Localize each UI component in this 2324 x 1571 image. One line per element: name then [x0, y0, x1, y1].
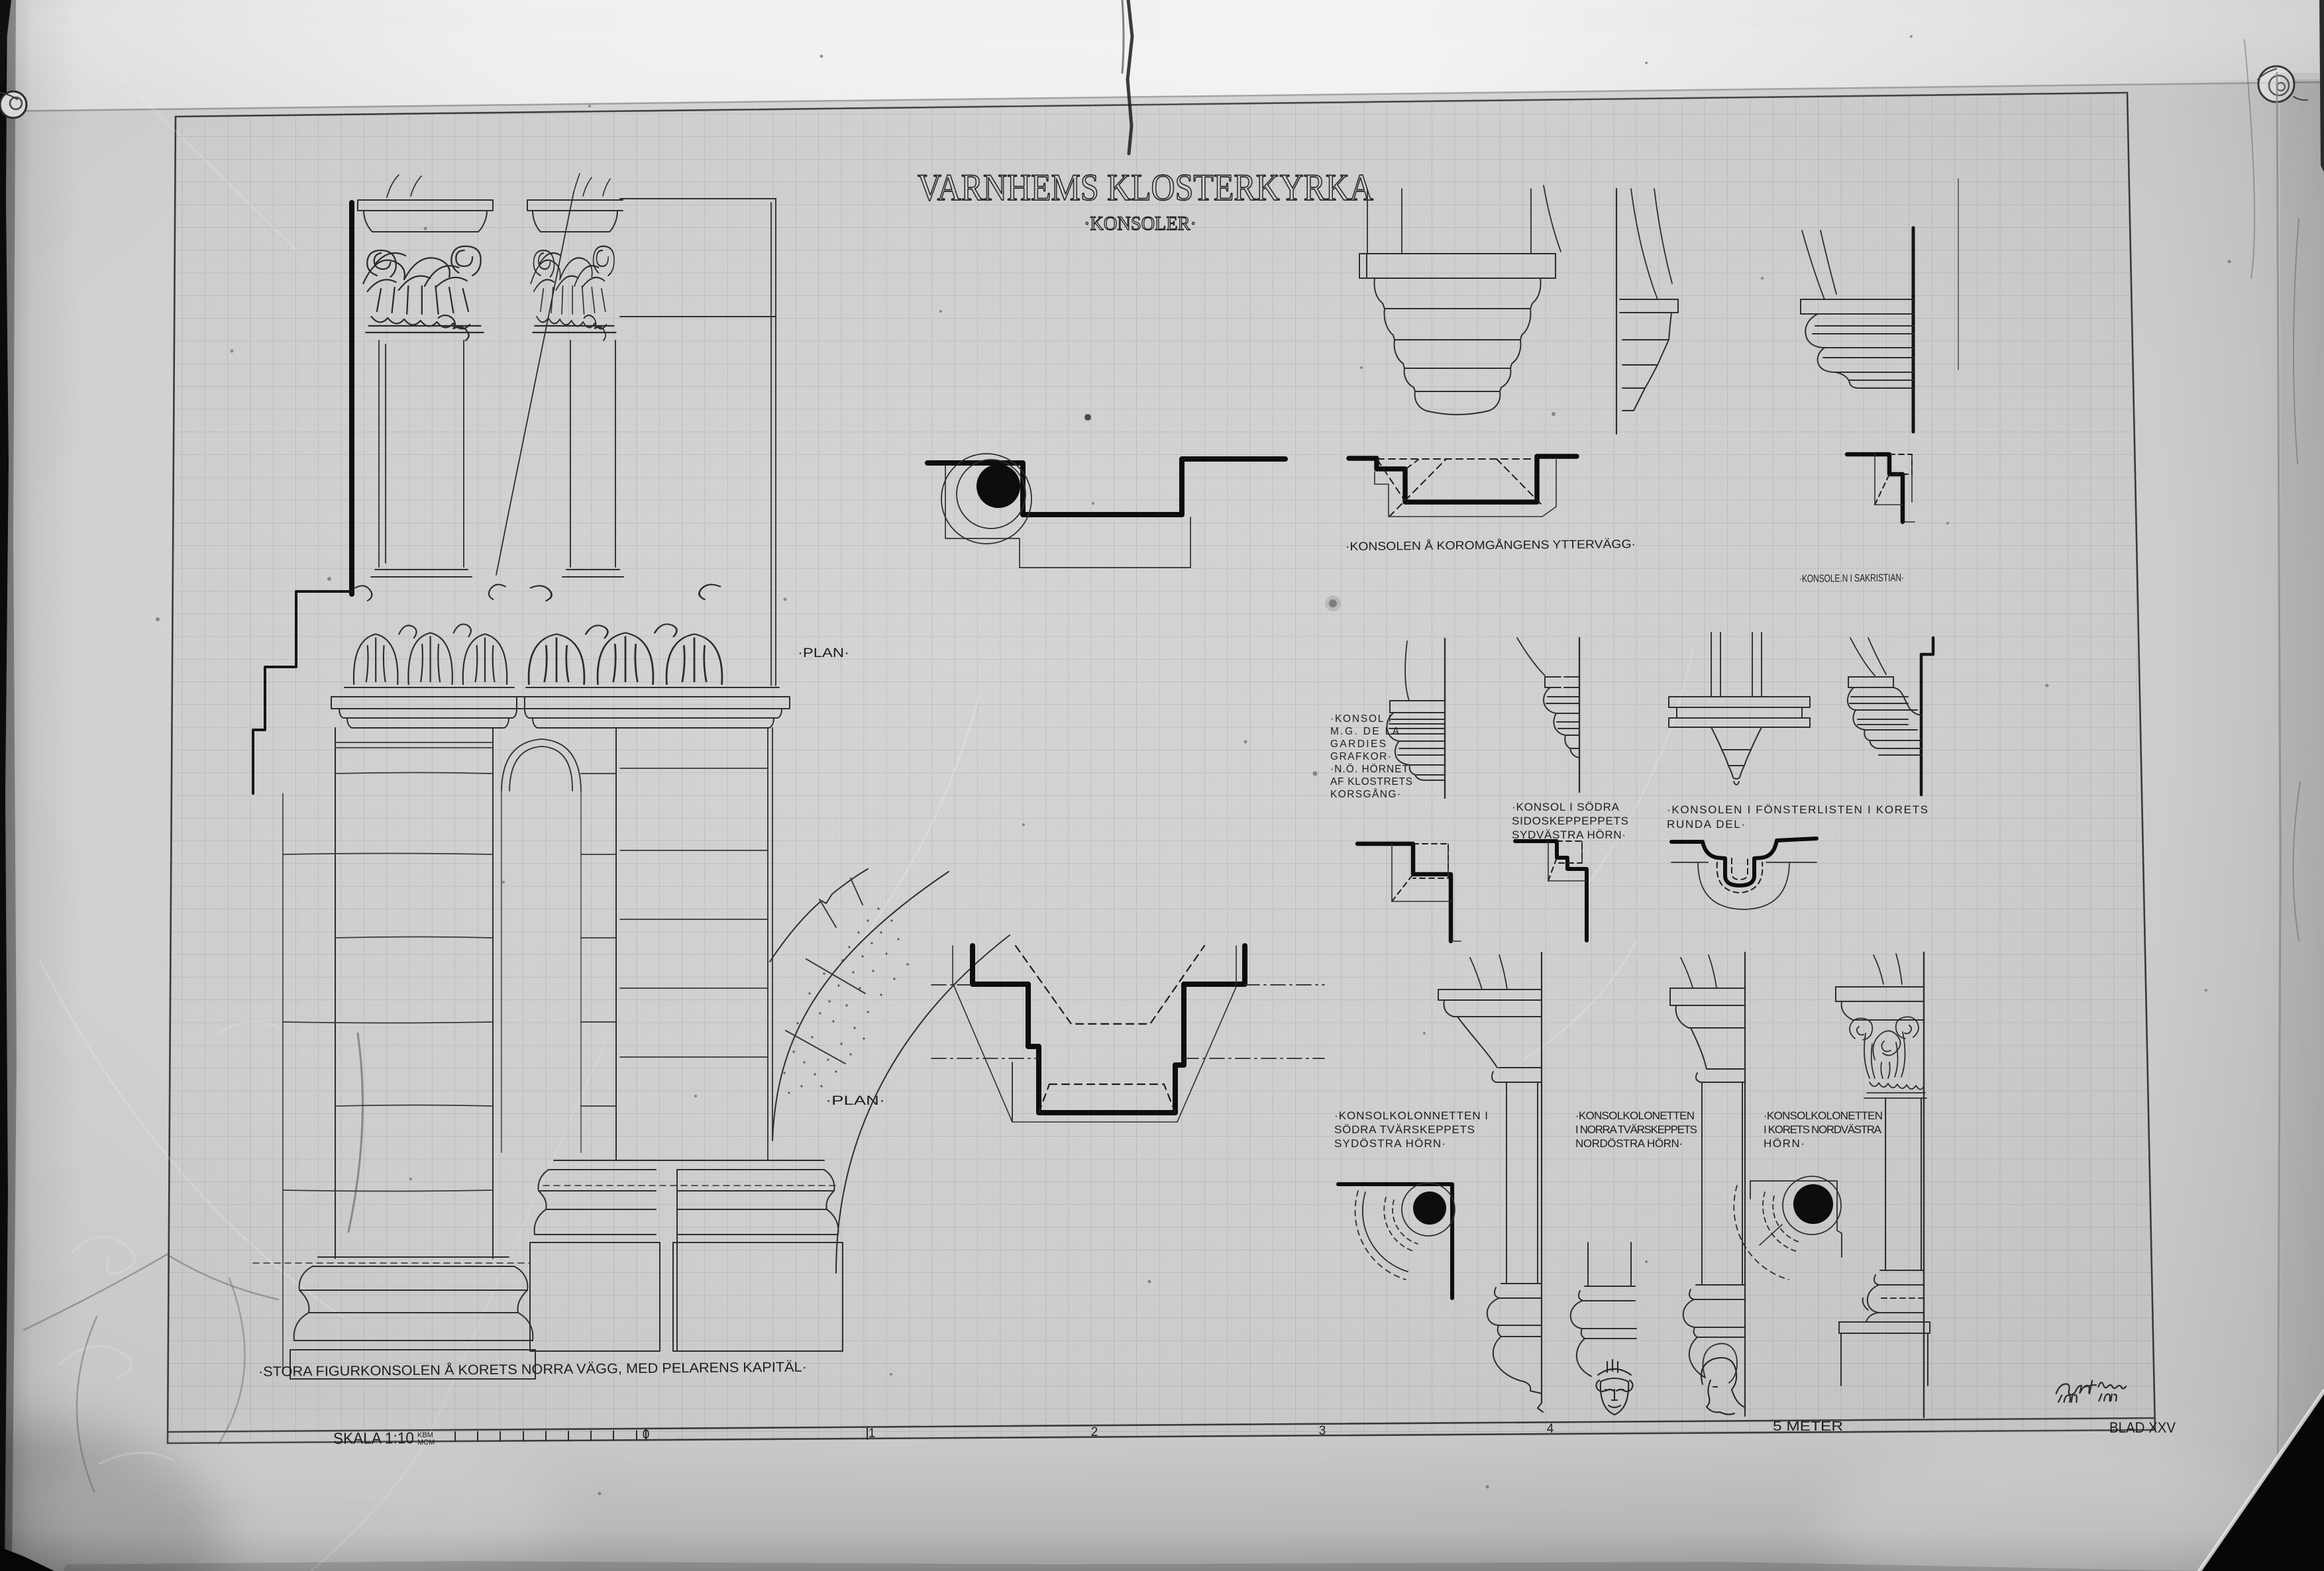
svg-text:·PLAN·: ·PLAN·	[798, 646, 849, 660]
svg-text:·KONSOLEN Å KOROMGÅNGENS YTTER: ·KONSOLEN Å KOROMGÅNGENS YTTERVÄGG·	[1346, 537, 1636, 553]
svg-text:·KONSOLER·: ·KONSOLER·	[1084, 213, 1196, 234]
svg-text:SKALA 1:10: SKALA 1:10	[333, 1429, 414, 1448]
svg-text:0: 0	[643, 1428, 650, 1442]
svg-text:·KONSOLKOLONETTENI NORRA TVÄRS: ·KONSOLKOLONETTENI NORRA TVÄRSKEPPETSNOR…	[1575, 1109, 1697, 1150]
svg-text:MCM: MCM	[417, 1439, 435, 1446]
svg-text:2: 2	[1091, 1425, 1098, 1439]
svg-text:·KONSOLE.N I SAKRISTIAN·: ·KONSOLE.N I SAKRISTIAN·	[1799, 572, 1904, 585]
svg-text:4: 4	[1547, 1422, 1554, 1436]
svg-text:5 METER: 5 METER	[1773, 1419, 1843, 1434]
svg-text:·KONSOL I SÖDRASIDOSKEPPEPPETS: ·KONSOL I SÖDRASIDOSKEPPEPPETSSYDVÄSTRA …	[1512, 801, 1628, 841]
svg-text:VARNHEMS KLOSTERKYRKA: VARNHEMS KLOSTERKYRKA	[918, 167, 1373, 209]
svg-text:3: 3	[1319, 1424, 1326, 1438]
svg-text:·PLAN·: ·PLAN·	[825, 1094, 885, 1108]
svg-text:BLAD XXV: BLAD XXV	[2109, 1419, 2176, 1436]
svg-text:1: 1	[869, 1427, 876, 1441]
